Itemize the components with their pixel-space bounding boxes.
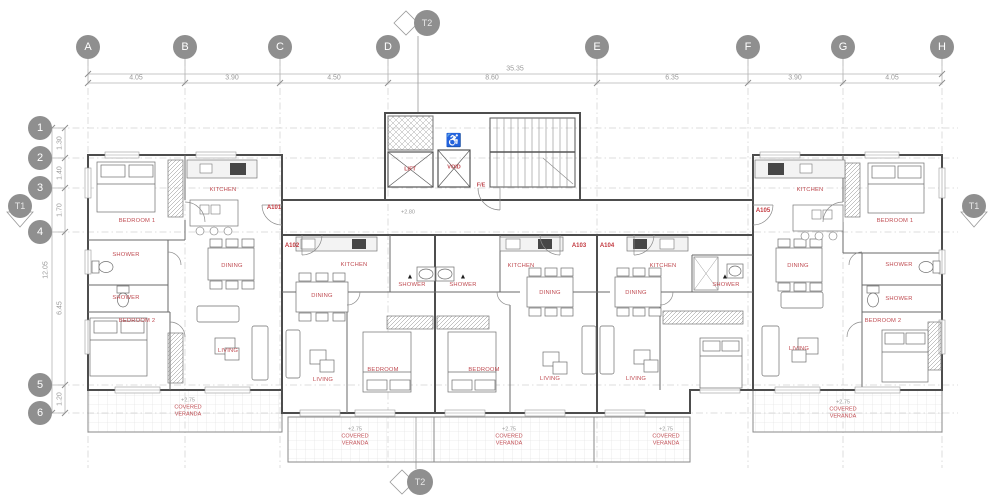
grid-row-bubble-4: 4: [28, 220, 52, 244]
room-label: SHOWER: [398, 283, 425, 289]
room-label: KITCHEN: [341, 263, 368, 269]
grid-column-bubble-e: E: [585, 35, 609, 59]
room-label: KITCHEN: [797, 188, 824, 194]
veranda-name: COVERED VERANDA: [648, 434, 684, 448]
level-marker: +2.75: [836, 400, 850, 406]
room-label: SHOWER: [112, 253, 139, 259]
room-label: SHOWER: [885, 263, 912, 269]
room-label: SHOWER: [449, 283, 476, 289]
sinks-stools: [196, 164, 837, 249]
dim-3-4: 1.70: [57, 203, 64, 217]
grid-row-bubble-5: 5: [28, 373, 52, 397]
grid-column-bubble-h: H: [930, 35, 954, 59]
room-label: BEDROOM 2: [865, 319, 902, 325]
dim-2-3: 1.40: [57, 166, 64, 180]
floor-plan-canvas: A B C D E F G H 1 2 3 4 5 6 T2 T2 T1 T1 …: [0, 0, 1000, 500]
dim-4-5: 6.45: [57, 301, 64, 315]
grid-row-bubble-3: 3: [28, 176, 52, 200]
void-label: VOID: [447, 165, 460, 171]
room-label: LIVING: [540, 377, 560, 383]
dim-d-e: 8.60: [485, 75, 499, 82]
room-label: DINING: [625, 291, 647, 297]
veranda-label: +2.75 COVERED VERANDA: [170, 398, 206, 419]
section-marker-t1-right: T1: [962, 194, 986, 218]
grid-column-bubble-d: D: [376, 35, 400, 59]
floorplan-linework: [0, 0, 1000, 500]
veranda-label: +2.75 COVERED VERANDA: [648, 427, 684, 448]
grid-column-bubble-g: G: [831, 35, 855, 59]
room-label: KITCHEN: [210, 188, 237, 194]
room-label: DINING: [787, 264, 809, 270]
level-marker-core: +2.80: [401, 210, 415, 216]
veranda-name: COVERED VERANDA: [170, 405, 206, 419]
room-label: BEDROOM 2: [119, 319, 156, 325]
dim-total-width: 35.35: [506, 66, 524, 73]
grid-row-bubble-2: 2: [28, 146, 52, 170]
room-label: DINING: [221, 264, 243, 270]
level-marker: +2.75: [181, 398, 195, 404]
veranda-label: +2.75 COVERED VERANDA: [825, 400, 861, 421]
room-label: LIVING: [218, 349, 238, 355]
grid-column-bubble-c: C: [268, 35, 292, 59]
stoves: [230, 163, 784, 249]
section-lines: [416, 36, 418, 469]
room-label: LIVING: [626, 377, 646, 383]
dim-1-2: 1.30: [57, 136, 64, 150]
apartment-label-a104: A104: [600, 243, 614, 249]
veranda-label: +2.75 COVERED VERANDA: [337, 427, 373, 448]
dim-total-height: 12.05: [43, 261, 50, 279]
veranda-name: COVERED VERANDA: [491, 434, 527, 448]
dim-e-f: 6.35: [665, 75, 679, 82]
lift-label: LIFT: [404, 167, 416, 173]
veranda-name: COVERED VERANDA: [337, 434, 373, 448]
apartment-label-a105: A105: [756, 208, 770, 214]
veranda-label: +2.75 COVERED VERANDA: [491, 427, 527, 448]
level-marker: +2.75: [348, 427, 362, 433]
section-marker-t2-bottom: T2: [407, 469, 433, 495]
room-label: LIVING: [789, 347, 809, 353]
room-label: SHOWER: [885, 297, 912, 303]
room-label: KITCHEN: [508, 264, 535, 270]
section-marker-t2-top: T2: [414, 10, 440, 36]
dim-f-g: 3.90: [788, 75, 802, 82]
room-label: BEDROOM: [367, 368, 398, 374]
planter-hatch: [388, 116, 433, 150]
warning-triangle-icon: ▲: [460, 274, 467, 281]
kitchen-counters: [187, 160, 845, 251]
warning-triangle-icon: ▲: [407, 274, 414, 281]
grid-row-bubble-6: 6: [28, 401, 52, 425]
wheelchair-icon: ♿: [446, 134, 462, 147]
apartment-label-a101: A101: [267, 205, 281, 211]
room-label: BEDROOM 1: [877, 219, 914, 225]
grid-column-bubble-b: B: [173, 35, 197, 59]
room-label: BEDROOM 1: [119, 219, 156, 225]
room-label: KITCHEN: [650, 264, 677, 270]
dim-5-6: 1.20: [57, 392, 64, 406]
dim-g-h: 4.05: [885, 75, 899, 82]
fire-escape-label: F/E: [477, 183, 486, 189]
section-marker-t1-left: T1: [8, 194, 32, 218]
room-label: DINING: [539, 291, 561, 297]
room-label: SHOWER: [712, 283, 739, 289]
warning-triangle-icon: ▲: [722, 274, 729, 281]
apartment-label-a102: A102: [285, 243, 299, 249]
dim-c-d: 4.50: [327, 75, 341, 82]
apartment-label-a103: A103: [572, 243, 586, 249]
dim-a-b: 4.05: [129, 75, 143, 82]
room-label: SHOWER: [112, 296, 139, 302]
veranda-name: COVERED VERANDA: [825, 407, 861, 421]
level-marker: +2.75: [659, 427, 673, 433]
grid-column-bubble-f: F: [736, 35, 760, 59]
room-label: BEDROOM: [468, 368, 499, 374]
grid-row-bubble-1: 1: [28, 116, 52, 140]
dim-b-c: 3.90: [225, 75, 239, 82]
room-label: DINING: [311, 294, 333, 300]
grid-column-bubble-a: A: [76, 35, 100, 59]
level-marker: +2.75: [502, 427, 516, 433]
room-label: LIVING: [313, 378, 333, 384]
